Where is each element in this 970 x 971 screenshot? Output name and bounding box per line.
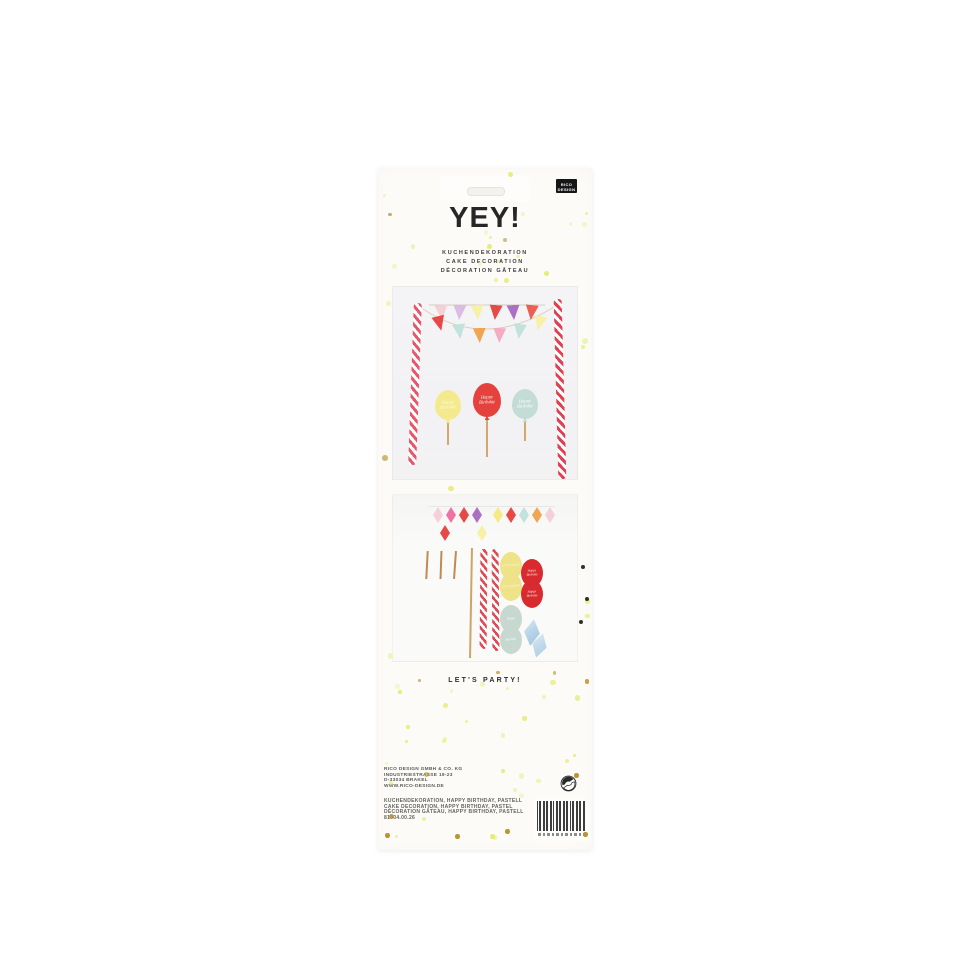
sticker-text: LET'S PARTY! [500,563,522,568]
sequin-dot-gold [505,829,510,834]
confetti-dot [395,835,398,838]
toothpick [440,551,442,579]
confetti-dot [553,671,557,675]
subtitle-line-fr: DÉCORATION GÂTEAU [378,267,592,276]
confetti-dot [418,679,421,682]
confetti-dot [575,695,580,700]
balloon-sticker-pair-red: Happy Birthday Happy Birthday [521,559,543,609]
barcode-bar [570,801,571,831]
confetti-dot [585,614,590,619]
striped-straw [492,549,500,651]
garland-diamond [519,507,529,523]
subtitle-line-en: CAKE DECORATION [378,258,592,267]
barcode-digit-mark [570,833,573,836]
photo-assembled: Happy Birthday Happy Birthday Happy Birt… [392,286,578,480]
confetti-dot [516,255,519,258]
topper-stick-red [486,416,488,457]
confetti-dot [490,834,495,839]
confetti-dot [536,779,541,784]
confetti-dot [392,264,397,269]
barcode-bar [543,801,546,831]
ean-barcode [534,799,590,841]
confetti-dot [550,680,555,685]
manufacturer-address: RICO DESIGN GMBH & CO. KG INDUSTRIESTRAS… [384,767,462,789]
confetti-dot [448,486,454,492]
sequin-dot-gold [455,834,460,839]
confetti-dot [542,695,546,699]
sticker-text: Happy [500,616,522,621]
confetti-dot [503,238,507,242]
confetti-dot [585,212,588,215]
confetti-dot [581,345,585,349]
sequin-dot-dark [579,620,583,624]
barcode-bar [559,801,562,831]
confetti-dot [501,733,505,737]
hang-tab [440,176,530,202]
garland-diamond [506,507,516,523]
balloon-text-line2: Birthday [473,399,501,406]
product-package: RICO DESIGN YEY! KUCHENDEKORATION CAKE D… [378,168,592,850]
barcode-digit-mark [556,833,559,836]
barcode-bar [546,801,547,831]
confetti-dot [480,682,485,687]
barcode-bar [539,801,541,831]
barcode-bar [566,801,568,831]
address-line: WWW.RICO-DESIGN.DE [384,784,462,790]
garland-diamond [446,507,456,523]
barcode-digit-mark [547,833,550,836]
confetti-dot [489,236,492,239]
barcode-digit-mark [574,833,577,836]
confetti-dot [424,772,429,777]
sticker-text: LET'S PARTY! [500,584,522,589]
sticker-text-line2: Birthday [521,572,543,577]
barcode-digit-mark [579,833,582,836]
confetti-dot [519,793,524,798]
confetti-dot [383,194,386,197]
confetti-dot [565,759,569,763]
garland-diamond [545,507,555,523]
brand-logo-line2: DESIGN [556,187,577,192]
balloon-text: Happy Birthday [435,399,462,411]
garland-diamond [493,507,503,523]
sequin-dot-gold [574,773,579,778]
article-number: 81004.00.26 [384,816,524,822]
sticker-text: Happy Birthday [521,569,543,578]
confetti-dot [406,725,410,729]
euro-slot-hole [467,187,505,196]
garland-diamond [472,507,482,523]
confetti-dot [422,817,426,821]
barcode-digit-mark [543,833,546,836]
balloon-sticker-pair-mint: Happy Birthday [500,605,522,655]
sticker-text-line2: Birthday [521,593,543,598]
toothpick [453,551,456,579]
barcode-bar [576,801,579,831]
barcode-bar [550,801,552,831]
tagline: LET'S PARTY! [378,677,592,684]
garland-diamond [440,525,450,541]
confetti-dot [504,278,509,283]
barcode-digits [535,832,589,838]
confetti-dot [465,720,468,723]
confetti-dot [522,716,527,721]
green-dot-recycling-icon [560,775,577,792]
balloon-sticker-pair-yellow: LET'S PARTY! LET'S PARTY! [500,552,522,602]
sequin-dot-gold [583,832,588,837]
confetti-dot [496,671,499,674]
confetti-dot [582,338,588,344]
subtitle-line-de: KUCHENDEKORATION [378,249,592,258]
confetti-dot [386,301,391,306]
address-line: RICO DESIGN GMBH & CO. KG [384,767,462,773]
sticker-text: Birthday [500,637,522,642]
confetti-dot [573,754,576,757]
balloon-sticker: Happy Birthday [521,580,543,608]
balloon-topper-mint: Happy Birthday [512,389,538,419]
balloon-text: Happy Birthday [512,398,539,410]
product-subtitle: KUCHENDEKORATION CAKE DECORATION DÉCORAT… [378,249,592,276]
confetti-dot [506,687,509,690]
confetti-dot [398,690,401,693]
toothpick [425,551,428,579]
confetti-dot [585,679,589,683]
garland-diamond [433,507,443,523]
garland-string [429,506,555,507]
confetti-dot [582,222,587,227]
sequin-dot-dark [581,565,585,569]
barcode-digit-mark [552,833,555,836]
confetti-dot [501,769,505,773]
confetti-dot [382,455,388,461]
sticker-text-line1: Happy [500,616,522,621]
product-description-block: KUCHENDEKORATION, HAPPY BIRTHDAY, PASTEL… [384,799,524,821]
barcode-bar [563,801,564,831]
sticker-text-line2: Birthday [500,637,522,642]
garland-diamond [477,525,487,541]
confetti-dot [450,689,453,692]
barcode-bar [583,801,585,831]
confetti-dot [519,773,524,778]
confetti-dot [442,739,447,744]
striped-straw [480,549,488,649]
brand-logo: RICO DESIGN [556,179,577,193]
confetti-dot [443,703,448,708]
balloon-topper-red: Happy Birthday [473,383,501,417]
confetti-dot [405,740,409,744]
balloon-sticker: LET'S PARTY! [500,573,522,601]
balloon-topper-yellow: Happy Birthday [435,390,461,420]
garland-diamond [532,507,542,523]
barcode-bar [553,801,554,831]
confetti-dot [494,278,498,282]
barcode-bar [556,801,558,831]
long-wooden-stick [469,548,473,658]
barcode-digit-mark [538,833,541,836]
sequin-dot-dark [585,597,589,601]
balloon-text: Happy Birthday [473,394,502,406]
confetti-dot [385,762,388,765]
balloon-text-line2: Birthday [512,403,538,410]
sticker-text: Happy Birthday [521,590,543,599]
barcode-bars [535,801,589,835]
confetti-dot [388,653,393,658]
balloon-text-line2: Birthday [435,404,461,411]
barcode-digit-mark [561,833,564,836]
garland-diamond [459,507,469,523]
confetti-dot [395,684,400,689]
barcode-bar [572,801,574,831]
product-photo-canvas: RICO DESIGN YEY! KUCHENDEKORATION CAKE D… [0,0,970,971]
photo-contents: LET'S PARTY! LET'S PARTY! Happy Birthday… [392,494,578,662]
barcode-bar [537,801,538,831]
barcode-digit-mark [565,833,568,836]
confetti-dot [497,260,500,263]
barcode-bar [579,801,580,831]
confetti-dot [513,788,517,792]
confetti-dot [569,222,573,226]
balloon-sticker: Birthday [500,626,522,654]
sequin-dot-gold [385,833,390,838]
